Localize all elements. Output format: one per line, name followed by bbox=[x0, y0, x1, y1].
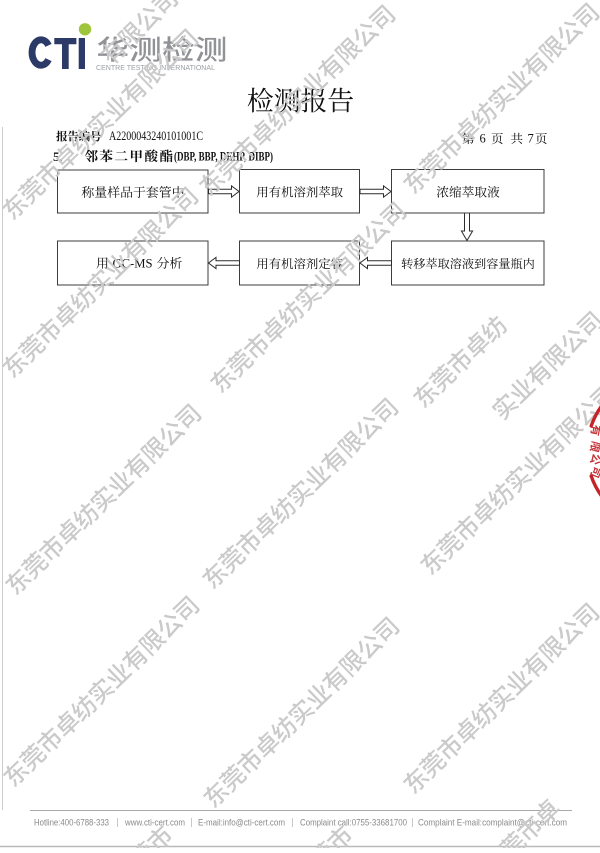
svg-text:A2200043240101001C: A2200043240101001C bbox=[109, 129, 203, 143]
svg-text:www.cti-cert.com: www.cti-cert.com bbox=[124, 818, 185, 828]
svg-text:7: 7 bbox=[528, 132, 534, 146]
svg-text:6: 6 bbox=[480, 132, 486, 146]
svg-text:Complaint call:0755-33681700: Complaint call:0755-33681700 bbox=[300, 818, 407, 828]
svg-text:E-mail:info@cti-cert.com: E-mail:info@cti-cert.com bbox=[198, 818, 285, 828]
svg-text:Hotline:400-6788-333: Hotline:400-6788-333 bbox=[34, 818, 109, 828]
